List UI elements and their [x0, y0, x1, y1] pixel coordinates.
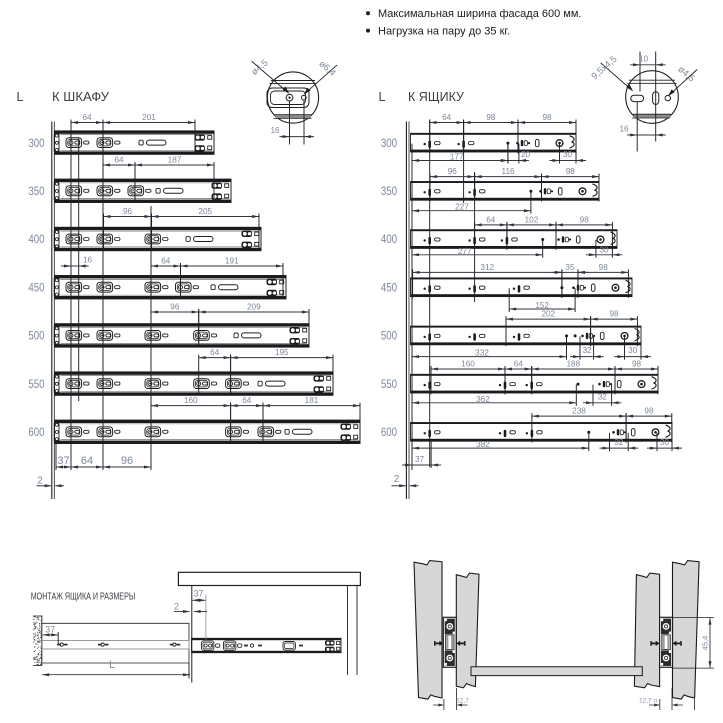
- svg-text:64: 64: [82, 113, 92, 122]
- svg-text:12,7: 12,7: [456, 697, 469, 704]
- svg-text:177: 177: [450, 153, 464, 162]
- svg-text:64: 64: [486, 215, 496, 224]
- svg-text:188: 188: [567, 359, 581, 368]
- svg-text:300: 300: [28, 136, 44, 150]
- svg-text:227: 227: [455, 203, 469, 212]
- svg-text:98: 98: [486, 113, 496, 122]
- svg-text:195: 195: [275, 348, 289, 357]
- svg-text:98: 98: [632, 359, 642, 368]
- svg-text:Нагрузка на пару до 35 кг.: Нагрузка на пару до 35 кг.: [378, 25, 510, 37]
- svg-text:201: 201: [142, 113, 156, 122]
- svg-text:191: 191: [225, 256, 239, 265]
- svg-text:362: 362: [476, 395, 490, 404]
- svg-text:45,4: 45,4: [701, 636, 710, 651]
- svg-text:12,7 п: 12,7 п: [639, 697, 657, 704]
- svg-text:550: 550: [381, 377, 397, 391]
- svg-text:2: 2: [174, 601, 179, 611]
- svg-text:350: 350: [28, 184, 44, 198]
- svg-text:37: 37: [57, 455, 69, 467]
- svg-text:Максимальная ширина фасада 600: Максимальная ширина фасада 600 мм.: [378, 8, 581, 20]
- svg-text:37: 37: [194, 589, 204, 599]
- svg-text:96: 96: [448, 167, 458, 176]
- svg-text:160: 160: [461, 359, 475, 368]
- svg-text:550: 550: [28, 377, 44, 391]
- svg-text:382: 382: [476, 440, 490, 449]
- svg-text:181: 181: [305, 396, 319, 405]
- svg-text:К ШКАФУ: К ШКАФУ: [52, 90, 109, 104]
- svg-text:350: 350: [381, 184, 397, 198]
- svg-text:37: 37: [45, 624, 55, 634]
- svg-text:64: 64: [114, 155, 124, 164]
- svg-text:64: 64: [210, 348, 220, 357]
- svg-text:98: 98: [566, 167, 576, 176]
- svg-text:64: 64: [242, 396, 252, 405]
- svg-text:98: 98: [580, 215, 590, 224]
- svg-text:2: 2: [394, 474, 400, 485]
- svg-text:98: 98: [644, 407, 654, 416]
- svg-text:209: 209: [247, 302, 261, 311]
- svg-text:277: 277: [458, 247, 472, 256]
- svg-text:98: 98: [599, 263, 609, 272]
- svg-text:32: 32: [598, 392, 608, 401]
- svg-text:300: 300: [381, 136, 397, 150]
- svg-text:2: 2: [37, 476, 43, 487]
- svg-text:98: 98: [609, 310, 619, 319]
- svg-text:30: 30: [599, 245, 609, 254]
- svg-text:30: 30: [563, 150, 573, 159]
- svg-text:32: 32: [614, 438, 624, 447]
- svg-text:116: 116: [502, 167, 515, 176]
- svg-text:32: 32: [582, 346, 592, 355]
- svg-text:98: 98: [542, 113, 552, 122]
- svg-text:450: 450: [381, 280, 397, 294]
- svg-text:96: 96: [123, 207, 133, 216]
- svg-text:187: 187: [168, 155, 182, 164]
- svg-text:600: 600: [381, 425, 397, 439]
- svg-text:35: 35: [565, 263, 575, 272]
- svg-text:64: 64: [161, 256, 171, 265]
- svg-text:64: 64: [442, 113, 452, 122]
- svg-text:МОНТАЖ ЯЩИКА И РАЗМЕРЫ: МОНТАЖ ЯЩИКА И РАЗМЕРЫ: [31, 591, 136, 603]
- svg-text:332: 332: [475, 349, 489, 358]
- svg-text:64: 64: [514, 359, 524, 368]
- svg-text:600: 600: [28, 425, 44, 439]
- svg-text:500: 500: [381, 329, 397, 343]
- svg-text:30: 30: [628, 346, 638, 355]
- svg-text:64: 64: [81, 455, 93, 467]
- svg-text:450: 450: [28, 280, 44, 294]
- svg-text:L: L: [17, 90, 24, 104]
- svg-text:102: 102: [525, 215, 539, 224]
- svg-text:96: 96: [121, 455, 133, 467]
- svg-text:16: 16: [619, 124, 629, 133]
- svg-text:37: 37: [415, 455, 425, 464]
- svg-text:160: 160: [184, 396, 198, 405]
- svg-text:312: 312: [480, 263, 494, 272]
- svg-text:К ЯЩИКУ: К ЯЩИКУ: [408, 90, 464, 104]
- svg-text:205: 205: [198, 207, 212, 216]
- svg-text:500: 500: [28, 329, 44, 343]
- svg-text:400: 400: [28, 232, 44, 246]
- svg-text:30: 30: [660, 438, 670, 447]
- svg-text:238: 238: [572, 407, 586, 416]
- svg-text:16: 16: [270, 126, 280, 135]
- svg-text:10: 10: [639, 55, 649, 64]
- svg-text:400: 400: [381, 232, 397, 246]
- svg-text:L: L: [109, 659, 115, 671]
- svg-text:16: 16: [83, 256, 93, 265]
- svg-text:L: L: [379, 90, 386, 104]
- svg-text:202: 202: [541, 310, 555, 319]
- svg-text:20: 20: [521, 150, 531, 159]
- svg-text:96: 96: [170, 302, 180, 311]
